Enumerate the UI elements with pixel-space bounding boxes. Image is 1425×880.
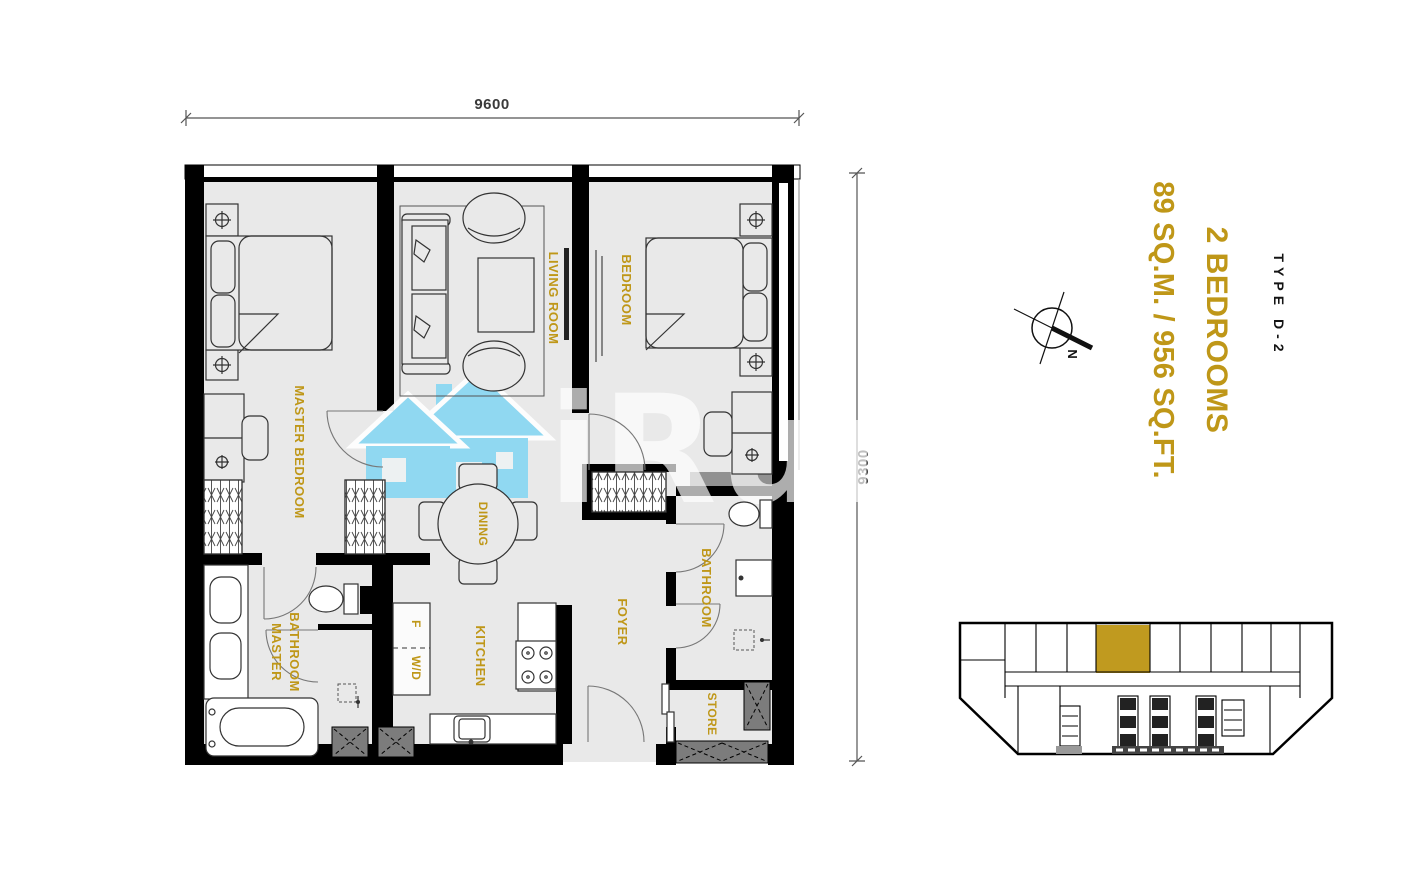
type-label: TYPE D-2: [1271, 253, 1287, 356]
key-plan-highlighted-unit: [1096, 625, 1150, 673]
label-bathroom: BATHROOM: [699, 548, 714, 628]
label-foyer: FOYER: [615, 598, 630, 645]
dimension-width-label: 9600: [474, 96, 509, 113]
label-bedroom: BEDROOM: [619, 254, 634, 325]
label-master-bathroom-1: MASTER: [269, 623, 284, 681]
label-master-bathroom-2: BATHROOM: [287, 612, 302, 692]
key-plan: [960, 623, 1332, 754]
dimension-top: 9600: [181, 96, 804, 126]
living-room-furniture: [400, 193, 569, 396]
label-kitchen: KITCHEN: [473, 625, 488, 686]
label-washer-dryer: W/D: [409, 656, 423, 681]
label-store: STORE: [705, 692, 719, 735]
label-dining: DINING: [476, 502, 490, 546]
floor-plan-page: 9600 9300: [0, 0, 1425, 880]
label-fridge: F: [409, 620, 423, 628]
bedrooms-label: 2 BEDROOMS: [1200, 227, 1233, 434]
north-label: N: [1065, 349, 1080, 358]
area-label: 89 SQ.M. / 956 SQ.FT.: [1147, 181, 1179, 479]
floor-plan-canvas: 9600 9300: [0, 0, 1425, 880]
north-compass: N: [1014, 292, 1092, 364]
label-master-bedroom: MASTER BEDROOM: [292, 385, 307, 518]
annotation-block: 89 SQ.M. / 956 SQ.FT. 2 BEDROOMS TYPE D-…: [1147, 181, 1287, 479]
label-living-room: LIVING ROOM: [546, 252, 561, 345]
